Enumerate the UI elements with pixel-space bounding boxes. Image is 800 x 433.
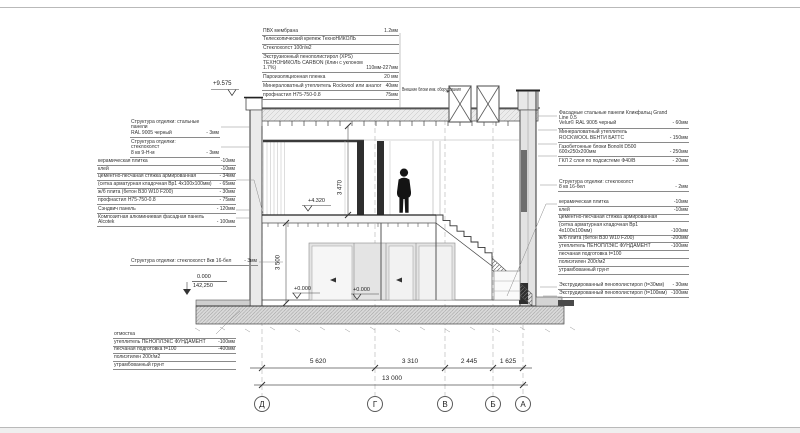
annotation-row: Структура отделки: стеклохолст8 кв 9-Н-м… [130,139,220,158]
annotation-value: - 150мм [670,136,688,141]
annotation-text: ж/б плита (бетон B30 W10 F200) [559,236,634,241]
elevation-datum-absolute: 142,250 [193,283,213,289]
dim-height-ground: 3 500 [276,251,283,275]
dim-segment-3: 2 445 [454,358,484,365]
annotation-value: - 34мм [220,174,236,179]
annotation-text: Фасадные стальные панели Кликфальц Grand… [559,111,671,127]
callout-blind-area: отмосткаутеплитель ПЕНОПЛЭКС ФУНДАМЕНТ-1… [113,331,236,370]
annotation-text: Структура отделки: стеклохолст 8кв 16-бе… [131,259,231,264]
annotation-value: -10мм [674,208,688,213]
annotation-text: (сетка арматурная кладочная Вр1 4х100х10… [98,182,211,187]
annotation-value: 20 мм [384,75,398,80]
annotation-value: - 30мм [673,283,689,288]
annotation-row: песчаная подготовка t=100-400мм [113,347,236,355]
annotation-row: керамическая плитка-10мм [97,158,236,166]
annotation-value: - 250мм [670,150,688,155]
annotation-row: цементно-песчаная стяжка армированная [558,215,689,223]
annotation-value: - 2мм [675,185,688,190]
annotation-value: 110мм-227мм [366,66,398,71]
annotation-value: -10мм [221,159,235,164]
callout-composite-panel: Композитная алюминиевая фасадная панель … [97,214,236,227]
dim-segment-2: 3 310 [395,358,425,365]
annotation-row: Газобетонные блоки Bonolit D500 600х250х… [558,143,689,157]
elevation-second-floor: +4.320 [308,198,325,204]
annotation-text: отмостка [114,332,135,337]
annotation-text: утеплитель ПЕНОПЛЭКС ФУНДАМЕНТ [559,244,651,249]
annotation-row: Структура отделки: стальные панелиRAL 90… [130,119,220,138]
right-wall-window [521,150,527,212]
annotation-text: цементно-песчаная стяжка армированная [98,174,196,179]
callout-floor-ground: керамическая плитка-10ммклей-10ммцементн… [558,199,689,275]
annotation-row: ж/б плита (бетон B30 W10 F200)- 30мм [97,189,236,197]
annotation-value: - 3мм [244,259,257,264]
axis-bubble-b: Б [485,396,501,412]
annotation-value: 40мм [386,84,398,89]
annotation-text: утеплитель ПЕНОПЛЭКС ФУНДАМЕНТ [114,340,206,345]
annotation-text: (сетка арматурная кладочная Вр1 4х100х10… [559,223,669,234]
annotation-value: -10мм [221,167,235,172]
annotation-text: Экструзионный пенополистирол (XPS)ТЕХНОН… [263,55,364,71]
annotation-row: утеплитель ПЕНОПЛЭКС ФУНДАМЕНТ-100мм [113,339,236,347]
dim-segment-1: 5 620 [303,358,333,365]
annotation-value: - 75мм [220,198,236,203]
annotation-text: Телескопический крепеж ТехноНИКОЛЬ [263,37,356,42]
annotation-value: 75мм [386,93,398,98]
annotation-value: -10мм [674,200,688,205]
equipment-callout-label: Внешние блоки инж. оборудования [402,88,461,93]
dim-total: 13 000 [377,375,407,382]
annotation-text: керамическая плитка [559,200,609,205]
elevation-datum: 0.000 [197,274,211,280]
architectural-section-drawing: ПВХ мембрана1.2ммТелескопический крепеж … [0,0,800,433]
annotation-value: -100мм [671,291,688,296]
wall-left [250,110,287,306]
annotation-row: отмостка [113,331,236,339]
annotation-text: Композитная алюминиевая фасадная панель … [98,215,215,226]
callout-facade-right: Фасадные стальные панели Кликфальц Grand… [558,109,689,166]
annotation-text: Структура отделки: стеклохолст8 кв 16-бе… [559,180,633,191]
annotation-row: утрамбованный грунт [113,362,236,370]
annotation-text: Минераловатный утеплитель Rockwool или а… [263,84,381,89]
annotation-row: (сетка арматурная кладочная Вр1 4х100х10… [97,181,236,189]
elevation-roof: +9.575 [213,81,232,87]
detail-marker [558,300,574,306]
annotation-value: - 3мм [206,151,219,156]
annotation-value: - 65мм [220,182,236,187]
window-mullions [345,141,440,215]
annotation-value: -200мм [671,236,688,241]
annotation-text: профнастил Н75-750-0.8 [98,198,156,203]
annotation-row: клей-10мм [558,207,689,215]
annotation-value: - 30мм [220,190,236,195]
annotation-row: утрамбованный грунт [558,267,689,275]
axis-bubble-g: Г [367,396,383,412]
annotation-text: Стеклохолст 100г/м2 [263,46,312,51]
annotation-value: - 60мм [673,121,689,126]
callout-interior-finish-ground: Структура отделки: стеклохолст 8кв 16-бе… [130,258,258,266]
annotation-row: Минераловатный утеплительROCKWOOL ВЕНТИ … [558,129,689,143]
annotation-value: - 3мм [206,131,219,136]
annotation-row: песчаная подготовка t=100 [558,251,689,259]
annotation-value: 1.2мм [384,29,398,34]
porch-slab [196,300,250,306]
annotation-value: -400мм [218,347,235,352]
annotation-text: клей [559,208,570,213]
annotation-text: Структура отделки: стеклохолст8 кв 9-Н-м [131,140,204,156]
annotation-text: Сэндвич панель [98,207,136,212]
annotation-row: Сэндвич панель- 120мм [97,206,236,214]
annotation-text: Минераловатный утеплительROCKWOOL ВЕНТИ … [559,130,627,141]
annotation-text: ПВХ мембрана [263,29,298,34]
callout-wall-finish-upper: Структура отделки: стальные панелиRAL 90… [130,119,220,138]
annotation-row: Экструдированный пенополистирол (t=30мм)… [558,282,689,290]
dim-segment-4: 1 625 [493,358,523,365]
annotation-value: -100мм [671,229,688,234]
annotation-row: Пароизоляционная пленка20 мм [262,73,399,82]
annotation-row: Структура отделки: стеклохолст 8кв 16-бе… [130,258,258,266]
annotation-text: клей [98,167,109,172]
annotation-value: - 20мм [673,159,689,164]
annotation-text: полиэтилен 200г/м2 [559,260,605,265]
annotation-text: песчаная подготовка t=100 [114,347,176,352]
annotation-text: Пароизоляционная пленка [263,75,325,80]
annotation-row: Фасадные стальные панели Кликфальц Grand… [558,109,689,129]
annotation-text: песчаная подготовка t=100 [559,252,621,257]
callout-floor-upper: керамическая плитка-10ммклей-10ммцементн… [97,158,236,205]
person-silhouette [397,169,411,213]
elevation-ground-floor-b: +0.000 [353,287,370,293]
annotation-row: Минераловатный утеплитель Rockwool или а… [262,82,399,91]
annotation-text: керамическая плитка [98,159,148,164]
annotation-row: керамическая плитка-10мм [558,199,689,207]
annotation-row: ПВХ мембрана1.2мм [262,27,399,36]
annotation-value: -100мм [671,244,688,249]
annotation-text: Экструдированный пенополистирол (t=30мм) [559,283,664,288]
callout-ceiling-finish-upper: Структура отделки: стеклохолст8 кв 9-Н-м… [130,139,220,158]
ground-hatch [195,327,575,332]
annotation-row: Стеклохолст 100г/м2 [262,45,399,54]
annotation-text: профнастил Н75-750-0.8 [263,93,321,98]
annotation-row: Композитная алюминиевая фасадная панель … [97,214,236,227]
annotation-value: - 100мм [217,220,235,225]
annotation-row: полиэтилен 200г/м2 [558,259,689,267]
axis-bubble-v: В [437,396,453,412]
annotation-value: - 120мм [217,207,235,212]
elevation-ground-floor: +0.000 [294,286,311,292]
annotation-row: цементно-песчаная стяжка армированная- 3… [97,174,236,182]
callout-roof-assembly: ПВХ мембрана1.2ммТелескопический крепеж … [262,27,399,100]
annotation-row: ГКЛ 2 слоя по подсистеме Ф40/В- 20мм [558,157,689,166]
annotation-row: профнастил Н75-750-0.8- 75мм [97,197,236,205]
annotation-row: клей-10мм [97,166,236,174]
annotation-row: Структура отделки: стеклохолст8 кв 16-бе… [558,179,689,192]
annotation-row: профнастил Н75-750-0.875мм [262,91,399,100]
annotation-text: Структура отделки: стальные панелиRAL 90… [131,120,204,136]
annotation-row: Телескопический крепеж ТехноНИКОЛЬ [262,36,399,45]
annotation-value: -100мм [218,340,235,345]
parapet-left [244,98,263,111]
annotation-text: ж/б плита (бетон B30 W10 F200) [98,190,173,195]
annotation-row: (сетка арматурная кладочная Вр1 4х100х10… [558,222,689,235]
dim-height-upper: 3 470 [338,176,345,200]
annotation-text: утрамбованный грунт [559,268,609,273]
annotation-text: утрамбованный грунт [114,363,164,368]
annotation-row: Экструдированный пенополистирол (t=100мм… [558,290,689,298]
wall-right [519,91,536,306]
annotation-text: Газобетонные блоки Bonolit D500 600х250х… [559,145,668,156]
annotation-text: Экструдированный пенополистирол (t=100мм… [559,291,667,296]
annotation-text: ГКЛ 2 слоя по подсистеме Ф40/В [559,159,636,164]
axis-bubble-a: А [515,396,531,412]
annotation-text: полиэтилен 200г/м2 [114,355,160,360]
annotation-row: Экструзионный пенополистирол (XPS)ТЕХНОН… [262,54,399,74]
callout-interior-finish-right: Структура отделки: стеклохолст8 кв 16-бе… [558,179,689,192]
axis-bubble-d: Д [254,396,270,412]
callout-xps: Экструдированный пенополистирол (t=30мм)… [558,282,689,298]
callout-sandwich-panel: Сэндвич панель- 120мм [97,206,236,214]
annotation-row: утеплитель ПЕНОПЛЭКС ФУНДАМЕНТ-100мм [558,243,689,251]
annotation-text: цементно-песчаная стяжка армированная [559,215,657,220]
annotation-row: ж/б плита (бетон B30 W10 F200)-200мм [558,236,689,244]
